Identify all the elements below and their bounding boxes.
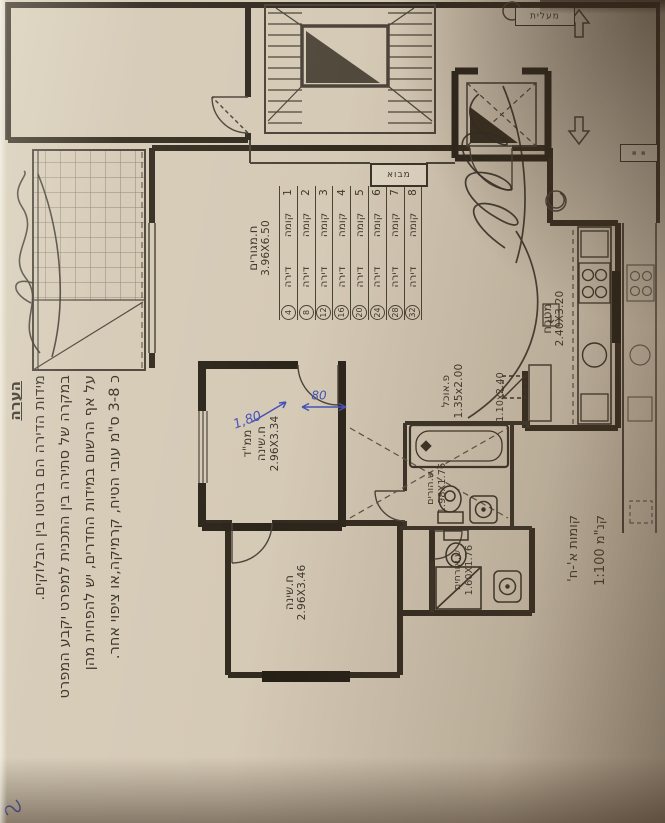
kitchen-cabinet xyxy=(529,365,551,421)
apt-word: דירה xyxy=(371,251,383,303)
floor-number: 2 xyxy=(300,186,312,199)
floor-word: קומה xyxy=(371,199,383,251)
floor-word: קומה xyxy=(282,199,294,251)
floor-number: 1 xyxy=(282,186,294,199)
note-line: על אף הרשום במידות החדרים, יש להפחית מהן xyxy=(82,375,98,817)
apt-number: 24 xyxy=(370,305,385,320)
passage-dim-label: 1.10x2.40 xyxy=(495,367,507,427)
table-row: 12 דירה קומה 3 xyxy=(315,186,333,320)
scale-floors: קומות א'-ח' xyxy=(560,515,587,645)
apt-number: 32 xyxy=(405,305,420,320)
apt-word: דירה xyxy=(300,251,312,303)
apt-number: 4 xyxy=(281,305,296,320)
apt-word: דירה xyxy=(407,251,419,303)
table-row: 28 דירה קומה 7 xyxy=(386,186,404,320)
floor-word: קומה xyxy=(336,199,348,251)
kitchen-sink-symbol xyxy=(583,343,607,367)
bath-parents-label: ש.הורים 1.98X1.76 xyxy=(425,458,449,518)
kitchen-label: מטבח 2.40X3.20 xyxy=(540,276,568,361)
floor-word: קומה xyxy=(354,199,366,251)
note-line: מידות הדירה הם ברוטו בין הבלוקים. xyxy=(32,375,48,817)
apt-number: 12 xyxy=(316,305,331,320)
apt-number: 28 xyxy=(388,305,403,320)
floor-number: 7 xyxy=(389,186,401,199)
stove-burners-symbol xyxy=(579,263,610,303)
lobby-label-box: מבוא xyxy=(370,163,428,187)
apt-word: דירה xyxy=(336,251,348,303)
table-row: 4 דירה קומה 1 xyxy=(279,186,297,320)
dining-label: פ.אוכל 1.35x2.00 xyxy=(440,352,466,430)
arrow-left-icon xyxy=(569,117,589,144)
elevator-label-box: מעלית xyxy=(515,7,575,26)
floor-number: 5 xyxy=(354,186,366,199)
neighbor-kitchen xyxy=(627,265,654,523)
table-row: 24 דירה קומה 6 xyxy=(368,186,386,320)
balcony xyxy=(33,150,145,370)
table-row: 32 דירה קומה 8 xyxy=(404,186,423,320)
note-line: כ 3-8 ס"מ עובי הטיח, קרמיקה,או ציפוי אחר… xyxy=(107,375,123,817)
stair-well-shadow xyxy=(306,31,380,83)
floor-word: קומה xyxy=(318,199,330,251)
table-row: 20 דירה קומה 5 xyxy=(350,186,368,320)
floor-word: קומה xyxy=(389,199,401,251)
scale-ratio: קנ"מ 1:100 xyxy=(587,515,614,645)
lobby-walls xyxy=(250,140,455,163)
small-tag-box: ▪▪ xyxy=(620,144,658,162)
blue-dim-short: 80 xyxy=(311,388,326,402)
elevator-label: מעלית xyxy=(530,12,560,22)
floor-word: קומה xyxy=(300,199,312,251)
floor-number: 6 xyxy=(371,186,383,199)
sink-guests-symbol xyxy=(494,571,521,602)
floor-number: 4 xyxy=(336,186,348,199)
party-wall xyxy=(623,223,656,533)
apt-word: דירה xyxy=(282,251,294,303)
apt-word: דירה xyxy=(354,251,366,303)
floor-apartment-table: 4 דירה קומה 1 8 דירה קומה 2 12 דירה קומה… xyxy=(279,186,422,320)
apt-number: 8 xyxy=(299,305,314,320)
living-window xyxy=(149,223,155,353)
staircase xyxy=(265,5,435,133)
plan-canvas: הערה מידות הדירה הם ברוטו בין הבלוקים. ב… xyxy=(0,0,665,823)
note-heading: הערה xyxy=(6,381,24,817)
table-row: 8 דירה קומה 2 xyxy=(297,186,315,320)
scale-block: קומות א'-ח' קנ"מ 1:100 xyxy=(560,515,615,645)
bath-guests-label: ש.אורחים 1.60X1.76 xyxy=(452,539,476,601)
apt-number: 20 xyxy=(352,305,367,320)
elevator-shadow xyxy=(470,107,518,143)
faucet-icon xyxy=(421,441,431,451)
apt-word: דירה xyxy=(318,251,330,303)
floor-number: 3 xyxy=(318,186,330,199)
bedroom-label: ח.שינה 2.96X3.46 xyxy=(282,550,310,635)
note-block: הערה מידות הדירה הם ברוטו בין הבלוקים. ב… xyxy=(6,375,132,817)
living-room-label: ח.מגורים 3.96X6.50 xyxy=(246,193,274,303)
floor-word: קומה xyxy=(407,199,419,251)
mamad-window xyxy=(199,411,207,483)
floor-plan-photo: הערה מידות הדירה הם ברוטו בין הבלוקים. ב… xyxy=(0,0,665,823)
apt-number: 16 xyxy=(334,305,349,320)
apt-word: דירה xyxy=(389,251,401,303)
doors xyxy=(212,97,512,563)
table-row: 16 דירה קומה 4 xyxy=(332,186,350,320)
lobby-label: מבוא xyxy=(387,170,411,180)
note-line: במקרה של סתירה בין התכנית למפרט יקבע המפ… xyxy=(57,375,73,817)
fridge-symbol xyxy=(581,394,608,421)
floor-number: 8 xyxy=(407,186,419,199)
